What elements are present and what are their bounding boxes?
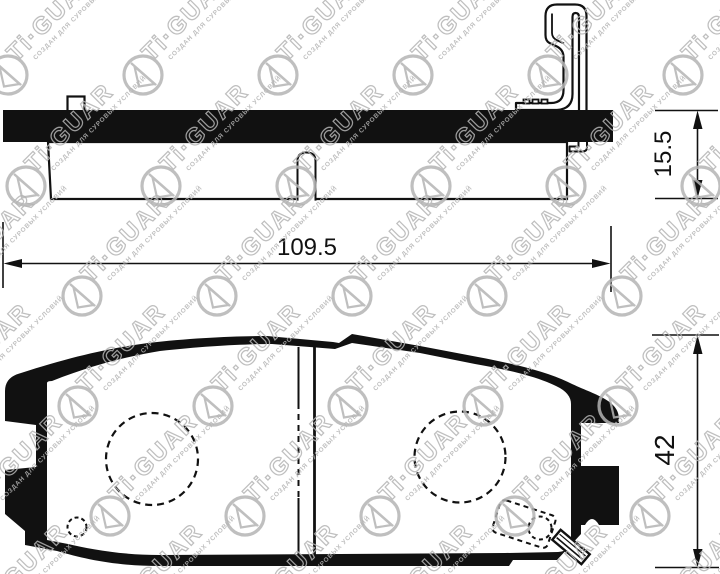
watermark (0, 0, 130, 94)
technical-drawing-canvas: Ti·GUAR СОЗДАН ДЛЯ СУРОВЫХ УСЛОВИЙ (0, 0, 720, 574)
watermark (631, 385, 720, 535)
clip-rib (542, 100, 548, 104)
brake-pad-technical-drawing: Ti·GUAR СОЗДАН ДЛЯ СУРОВЫХ УСЛОВИЙ (0, 0, 720, 574)
arrow-right-icon (592, 259, 611, 268)
clip-rib (533, 100, 539, 104)
watermark (599, 275, 720, 425)
arrow-left-icon (4, 259, 23, 268)
thickness-dimension-label: 15.5 (650, 131, 677, 178)
arrow-up-icon (693, 111, 703, 130)
watermark (664, 0, 720, 94)
